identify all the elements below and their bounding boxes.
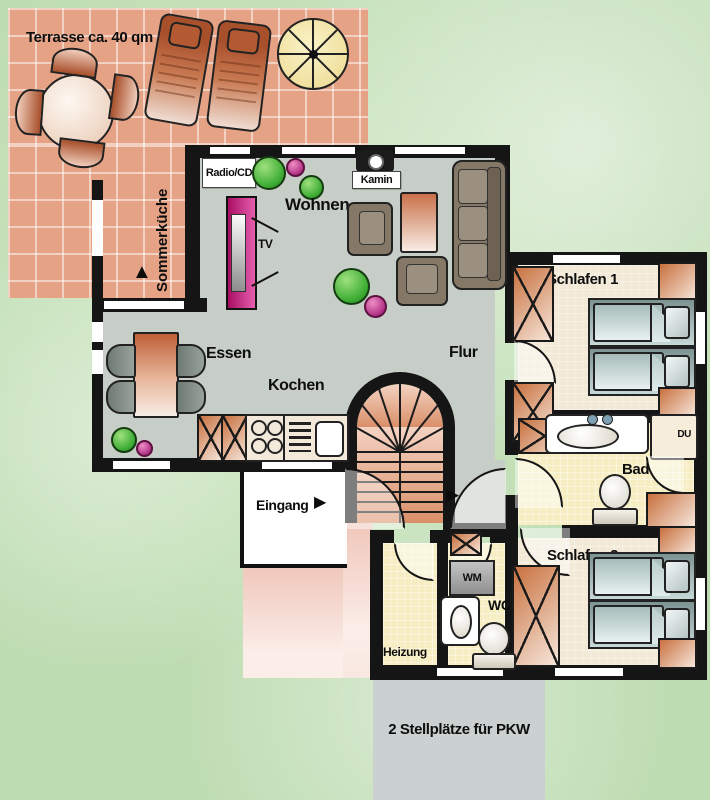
radio-cd-label-box: Radio/CD (202, 158, 256, 188)
toilet (470, 622, 518, 670)
sofa-cushion (458, 243, 488, 278)
entrance-area: Eingang ▶ (240, 472, 347, 568)
lounger-slats (216, 54, 261, 105)
washing-machine-label: WM (463, 573, 482, 584)
window (696, 578, 705, 630)
toilet-tank (472, 653, 516, 670)
terrace-label: Terrasse ca. 40 qm (26, 30, 153, 45)
entrance-arrow-icon: ▶ (314, 495, 326, 511)
wall (370, 530, 394, 543)
drainer (289, 422, 311, 452)
wall (185, 145, 200, 302)
toilet (590, 474, 640, 526)
stove (245, 414, 287, 462)
toilet-bowl (478, 622, 510, 656)
window (92, 350, 103, 374)
window (282, 147, 355, 154)
coffee-table (400, 192, 438, 253)
window (696, 312, 705, 364)
wc-label: WC (488, 598, 511, 612)
tv-unit (226, 196, 257, 310)
wardrobe (512, 565, 560, 667)
dining-chair (106, 344, 136, 378)
entry-path (343, 523, 372, 678)
terrace-arrow-icon: ▲ (132, 262, 152, 282)
plant-icon (286, 158, 305, 177)
armchair (396, 256, 448, 306)
pillow (664, 608, 690, 641)
washbasin (545, 414, 649, 454)
tap (587, 414, 598, 425)
dining-label: Essen (206, 346, 251, 362)
kitchen-label: Kochen (268, 378, 324, 394)
pillow (664, 355, 690, 388)
plant-icon (111, 427, 137, 453)
washing-machine: WM (449, 560, 495, 596)
shower-label: DU (677, 430, 691, 440)
dining-chair (176, 380, 206, 414)
plant-icon (333, 268, 370, 305)
sofa (452, 160, 507, 290)
toilet-bowl (599, 474, 631, 510)
fireplace-icon (356, 150, 394, 172)
wall (370, 665, 707, 680)
plant-icon (364, 295, 387, 318)
plant-icon (252, 156, 286, 190)
dining-chair (176, 344, 206, 378)
pillow (664, 306, 690, 339)
small-cabinet (450, 532, 482, 556)
radio-cd-label: Radio/CD (206, 168, 252, 179)
toilet-tank (592, 508, 638, 526)
sofa-back (487, 167, 501, 281)
wardrobe (512, 266, 554, 342)
pillow (664, 560, 690, 593)
basin (450, 605, 472, 639)
burner (251, 420, 267, 436)
plant-icon (136, 440, 153, 457)
dresser (658, 638, 697, 669)
tv-label: TV (258, 238, 273, 250)
burner (251, 438, 267, 454)
fireplace-label: Kamin (361, 175, 393, 186)
bath-cabinet (646, 492, 697, 528)
burner (267, 438, 283, 454)
window (262, 461, 332, 469)
lounger-slats (155, 47, 202, 99)
bedroom1-label: Schlafen 1 (547, 272, 618, 287)
fireplace-chimney (368, 154, 384, 170)
dresser (658, 262, 697, 303)
burner (267, 420, 283, 436)
window (555, 668, 623, 676)
armchair (347, 202, 393, 256)
armchair-seat (406, 264, 438, 294)
summer-kitchen-label: Sommerküche (155, 174, 170, 292)
terrace-area-left (8, 145, 202, 298)
entry-path (243, 564, 343, 678)
entrance-label: Eingang (256, 498, 308, 512)
dining-chair (106, 380, 136, 414)
kitchen-sink (315, 421, 344, 457)
sofa-cushion (458, 169, 488, 204)
parking-label: 2 Stellplätze für PKW (373, 722, 545, 737)
shower: DU (650, 414, 698, 460)
parasol-icon (277, 18, 349, 90)
window (395, 147, 465, 154)
heating-label: Heizung (383, 646, 427, 658)
parasol-center (309, 50, 318, 59)
tap (602, 414, 613, 425)
window (553, 255, 620, 263)
hall-arrow-icon: ▶ (446, 486, 459, 503)
lounger-cushion (167, 21, 203, 50)
dining-table (133, 332, 179, 418)
window (113, 461, 170, 469)
floor-plan: Terrasse ca. 40 qm Sommerküche ▲ 2 Stell… (0, 0, 710, 800)
window (210, 147, 250, 154)
window (92, 322, 103, 342)
fireplace-label-box: Kamin (352, 171, 401, 189)
bed (588, 298, 696, 347)
sofa-cushion (458, 206, 488, 241)
window (92, 200, 103, 256)
kitchen-sink-unit (283, 414, 349, 462)
window (104, 301, 184, 309)
armchair-seat (359, 211, 385, 245)
bed (588, 552, 696, 601)
tv-screen (231, 214, 246, 292)
hall-label: Flur (449, 345, 478, 361)
living-room-label: Wohnen (285, 196, 349, 213)
wall (370, 530, 383, 665)
basin (557, 424, 619, 449)
parking-area: 2 Stellplätze für PKW (373, 678, 545, 800)
lounger-cushion (226, 27, 261, 55)
